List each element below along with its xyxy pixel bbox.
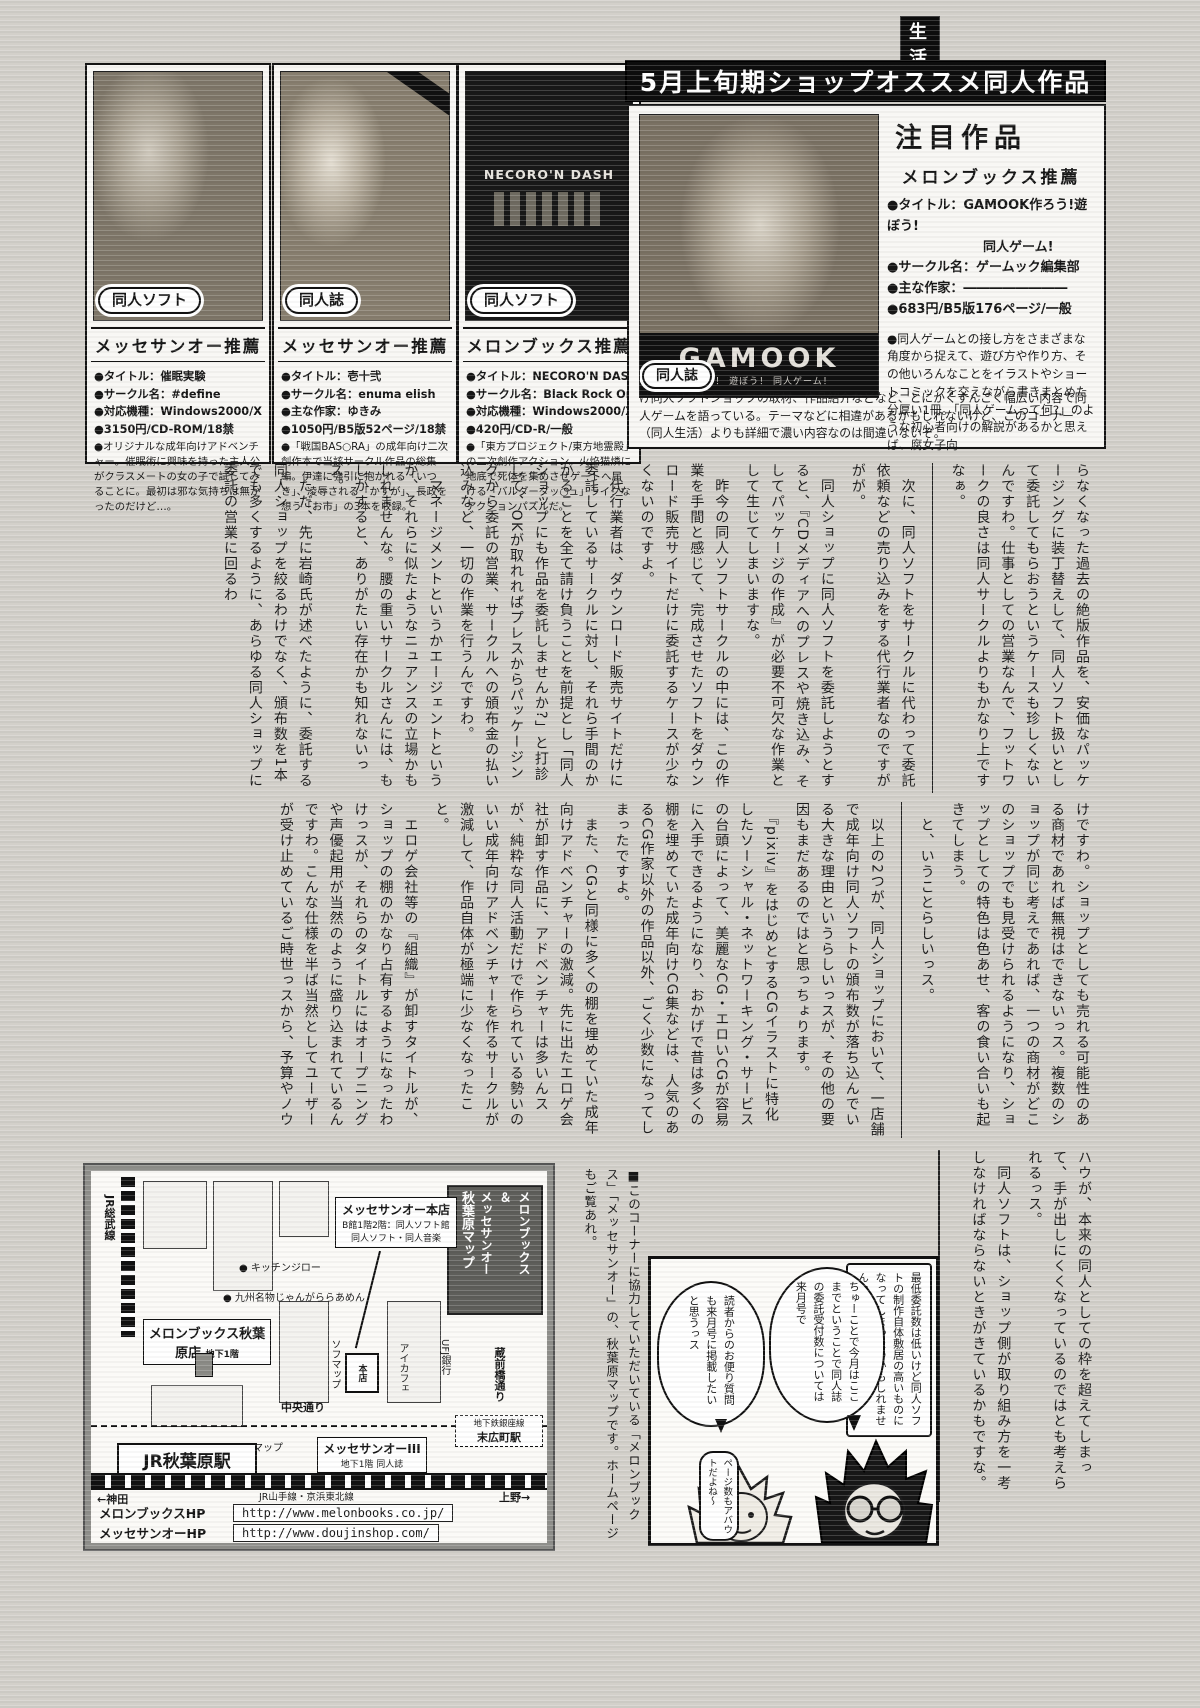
product-specs: ●タイトル：NECORO'N DASH ●サークル名：Black Rock On… — [459, 362, 639, 438]
article-paragraph: けですわ。ショップとしても売れる可能性のある商材であれば無視はできないっス。複数… — [945, 802, 1094, 1138]
article-paragraph: 昨今の同人ソフトサークルの中には、この作業を手間と感じて、完成させたソフトをダウ… — [634, 463, 734, 793]
type-pill: 同人誌 — [642, 363, 712, 389]
shop-recommend-banner: 5月上旬期ショップオススメ同人作品 — [625, 60, 1106, 102]
spec-line: ●1050円/B5版52ページ/18禁 — [281, 421, 449, 439]
messe-honten-label: メッセサンオー本店 B館1階2階：同人ソフト館 同人ソフト・同人音楽 — [335, 1197, 457, 1248]
article-paragraph: ハウが、本来の同人としての枠を超えてしまって、手が出しにくくなっているのではとも… — [1021, 1150, 1096, 1505]
speech-text: ちゅーことで今月はここまでということで同人誌の委託受付数については来月号で — [792, 1281, 862, 1409]
article-paragraph: マネージメントというかエージェントというか、それらに似たようなニュアンスの立場か… — [323, 463, 448, 793]
spec-line: ●サークル名：Black Rock One — [466, 386, 632, 404]
map-title-line: メッセサンオー — [478, 1191, 495, 1309]
messe-hp-url: http://www.doujinshop.com/ — [233, 1524, 439, 1542]
article-paragraph: と、いうことらしいっス。 — [901, 802, 939, 1138]
article-paragraph: 代行業者は、ダウンロード販売サイトだけに委託しているサークルに対し、それら手間の… — [453, 463, 627, 793]
shop-recommend-label: メッセサンオー推薦 — [278, 327, 452, 362]
map-title-line: メロンブックス — [516, 1191, 533, 1309]
manga-panel: 最低委託数は低いけど同人ソフトの制作自体敷居の高いものになってしまったのかもしれ… — [648, 1256, 939, 1546]
cover-art-gamook: GAMOOK 作ろう！ 遊ぼう！ 同人ゲーム！ 同人誌 — [639, 114, 879, 398]
map-block — [143, 1181, 207, 1249]
map-title-line: 秋葉原マップ — [457, 1191, 476, 1309]
spec-line: ●タイトル：催眠実験 — [94, 368, 262, 386]
melon-hp-label: メロンブックスHP — [99, 1503, 227, 1522]
product-specs: ●タイトル：催眠実験 ●サークル名：#define ●対応機種：Windows2… — [87, 362, 269, 438]
spec-line: ●683円/B5版176ページ/一般 — [887, 300, 1095, 321]
article-paragraph: ただ、先に岩崎氏が述べたように、委託する同人ショップを絞るわけでなく、頒布数を1… — [217, 463, 317, 793]
featured-description-cont: け同人ソフトショップの取材、作品紹介などなど、とにかくすんごく幅広い内容で同人ゲ… — [639, 390, 1096, 443]
speech-bubble-small: ページ数もアバウトだよね〜 — [699, 1451, 739, 1541]
map-title-amp: ＆ — [497, 1191, 514, 1309]
suehirocho-label: 地下鉄銀座線 末広町駅 — [455, 1415, 543, 1447]
janga-label: ● 九州名物じゃんがららあめん — [223, 1289, 365, 1304]
speech-text: ページ数もアバウトだよね〜 — [704, 1458, 734, 1534]
melon-building — [195, 1353, 213, 1377]
jr-sobu-label: JR総武線 — [101, 1195, 117, 1241]
adult-ribbon — [381, 71, 450, 125]
article-band-2: けですわ。ショップとしても売れる可能性のある商材であれば無視はできないっス。複数… — [85, 802, 1100, 1138]
map-title-block: 秋葉原マップ メッセサンオー ＆ メロンブックス — [447, 1185, 543, 1315]
product-specs: ●タイトル：壱十弐 ●サークル名：enuma elish ●主な作家：ゆきみ ●… — [274, 362, 456, 438]
jr-sobu-rail — [121, 1177, 135, 1337]
messe3-label: メッセサンオーIII 地下1階 同人誌 — [317, 1437, 427, 1473]
cover-art-ichijuuni: 同人誌 — [280, 71, 450, 321]
spec-line: ●対応機種：Windows2000/Xp/Vista — [466, 403, 632, 421]
spec-line: ●サークル名：#define — [94, 386, 262, 404]
type-pill: 同人ソフト — [470, 287, 573, 314]
article-paragraph: らなくなった過去の絶版作品を、安価なパッケージングに装丁替えして、同人ソフト扱い… — [932, 463, 1094, 793]
featured-specs: ●タイトル：GAMOOK作ろう!遊ぼう! 同人ゲーム! ●サークル名：ゲームック… — [887, 196, 1095, 321]
akihabara-map: JR総武線 秋葉原マップ メッセサンオー ＆ メロンブックス メッセサンオー本店… — [85, 1165, 553, 1549]
cover-art-hypnosis: 同人ソフト — [93, 71, 263, 321]
sofmap1-label: ソフマップ — [327, 1339, 342, 1389]
product-box-2: 同人誌 メッセサンオー推薦 ●タイトル：壱十弐 ●サークル名：enuma eli… — [272, 63, 458, 464]
type-pill: 同人誌 — [285, 287, 358, 314]
spec-line: ●サークル名：ゲームック編集部 — [887, 258, 1095, 279]
featured-shop: メロンブックス推薦 — [887, 163, 1095, 188]
bubble-tail — [715, 1419, 727, 1433]
spec-line: ●主な作家：ゆきみ — [281, 403, 449, 421]
speech-bubble-mid: ちゅーことで今月はここまでということで同人誌の委託受付数については来月号で — [769, 1267, 885, 1423]
product-box-3: NECORO'N DASH 同人ソフト メロンブックス推薦 ●タイトル：NECO… — [457, 63, 641, 464]
article-band-3: ハウが、本来の同人としての枠を超えてしまって、手が出しにくくなっているのではとも… — [948, 1150, 1102, 1505]
article-band-1: らなくなった過去の絶版作品を、安価なパッケージングに装丁替えして、同人ソフト扱い… — [85, 463, 1100, 793]
spec-line: ●タイトル：NECORO'N DASH — [466, 368, 632, 386]
map-block — [279, 1301, 329, 1403]
article-paragraph: 『pixiv』をはじめとするCGイラストに特化したソーシャル・ネットワーキング・… — [609, 802, 783, 1138]
melon-hp-url: http://www.melonbooks.co.jp/ — [233, 1504, 453, 1522]
article-paragraph: エロゲ会社等の『組織』が卸すタイトルが、ショップの棚のかなり占有するようになった… — [273, 802, 422, 1138]
cover-sprites — [494, 192, 604, 226]
spec-line: ●主な作家：―――――――― — [887, 279, 1095, 300]
speech-text: 読者からのお便り質問も来月号に掲載したいと思うっス — [685, 1295, 738, 1413]
article-paragraph: 同人ソフトは、ショップ側が取り組み方を一考しなければならないときがきているかもで… — [965, 1150, 1015, 1505]
kuramae-label: 蔵前橋通り — [491, 1347, 507, 1402]
spec-line: ●サークル名：enuma elish — [281, 386, 449, 404]
magazine-page: 同人 生活 同人ソフト メッセサンオー推薦 ●タイトル：催眠実験 ●サークル名：… — [0, 0, 1200, 1708]
messe-hp-label: メッセサンオーHP — [99, 1523, 227, 1542]
akihabara-station-label: JR秋葉原駅 — [117, 1443, 257, 1476]
map-note: ■このコーナーに協力していただいている「メロンブックス」「メッセサンオー」の、秋… — [556, 1168, 644, 1540]
spec-line: ●対応機種：Windows2000/Xp/Vista — [94, 403, 262, 421]
type-pill: 同人ソフト — [98, 287, 201, 314]
honten-building: 本店 — [345, 1353, 379, 1393]
map-block — [151, 1385, 243, 1427]
shop-recommend-label: メロンブックス推薦 — [463, 327, 635, 362]
yamanote-label: JR山手線・京浜東北線 — [259, 1489, 354, 1503]
chuo-dori-label: 中央通り — [281, 1399, 325, 1415]
aicafe-label: アイカフェ — [395, 1343, 410, 1393]
melon-hp-row: メロンブックスHP http://www.melonbooks.co.jp/ — [99, 1503, 453, 1522]
article-paragraph: 以上の2つが、同人ショップにおいて、一店舗で成年向け同人ソフトの頒布数が落ち込ん… — [789, 802, 889, 1138]
map-block — [279, 1181, 329, 1237]
article-paragraph: 次に、同人ソフトをサークルに代わって委託依頼などの売り込みをする代行業者なのです… — [845, 463, 920, 793]
speech-bubble-left: 読者からのお便り質問も来月号に掲載したいと思うっス — [657, 1281, 765, 1427]
featured-box: GAMOOK 作ろう！ 遊ぼう！ 同人ゲーム！ 同人誌 注目作品 メロンブックス… — [627, 104, 1106, 449]
messe-hp-row: メッセサンオーHP http://www.doujinshop.com/ — [99, 1523, 439, 1542]
spec-line: ●3150円/CD-ROM/18禁 — [94, 421, 262, 439]
featured-title: 注目作品 — [887, 114, 1095, 157]
spec-line: ●420円/CD-R/一般 — [466, 421, 632, 439]
ufj-label: UFJ銀行 — [437, 1339, 452, 1375]
spec-line: ●タイトル：GAMOOK作ろう!遊ぼう! — [887, 196, 1095, 238]
shop-recommend-label: メッセサンオー推薦 — [91, 327, 265, 362]
yamanote-rail — [91, 1473, 547, 1490]
product-box-1: 同人ソフト メッセサンオー推薦 ●タイトル：催眠実験 ●サークル名：#defin… — [85, 63, 271, 464]
cover-title: NECORO'N DASH — [484, 167, 614, 182]
ueno-label: 上野→ — [499, 1489, 530, 1505]
map-block — [213, 1181, 273, 1291]
article-paragraph: 同人ショップに同人ソフトを委託しようとすると、『CDメディアへのプレスや焼き込み… — [739, 463, 839, 793]
article-paragraph: また、CGと同様に多くの棚を埋めていた成年向けアドベンチャーの激減。先に出たエロ… — [428, 802, 602, 1138]
spec-line: ●タイトル：壱十弐 — [281, 368, 449, 386]
manga-character-right — [814, 1427, 934, 1543]
kitchen-jiro-label: ● キッチンジロー — [239, 1259, 321, 1274]
spec-line: 同人ゲーム! — [887, 238, 1095, 259]
